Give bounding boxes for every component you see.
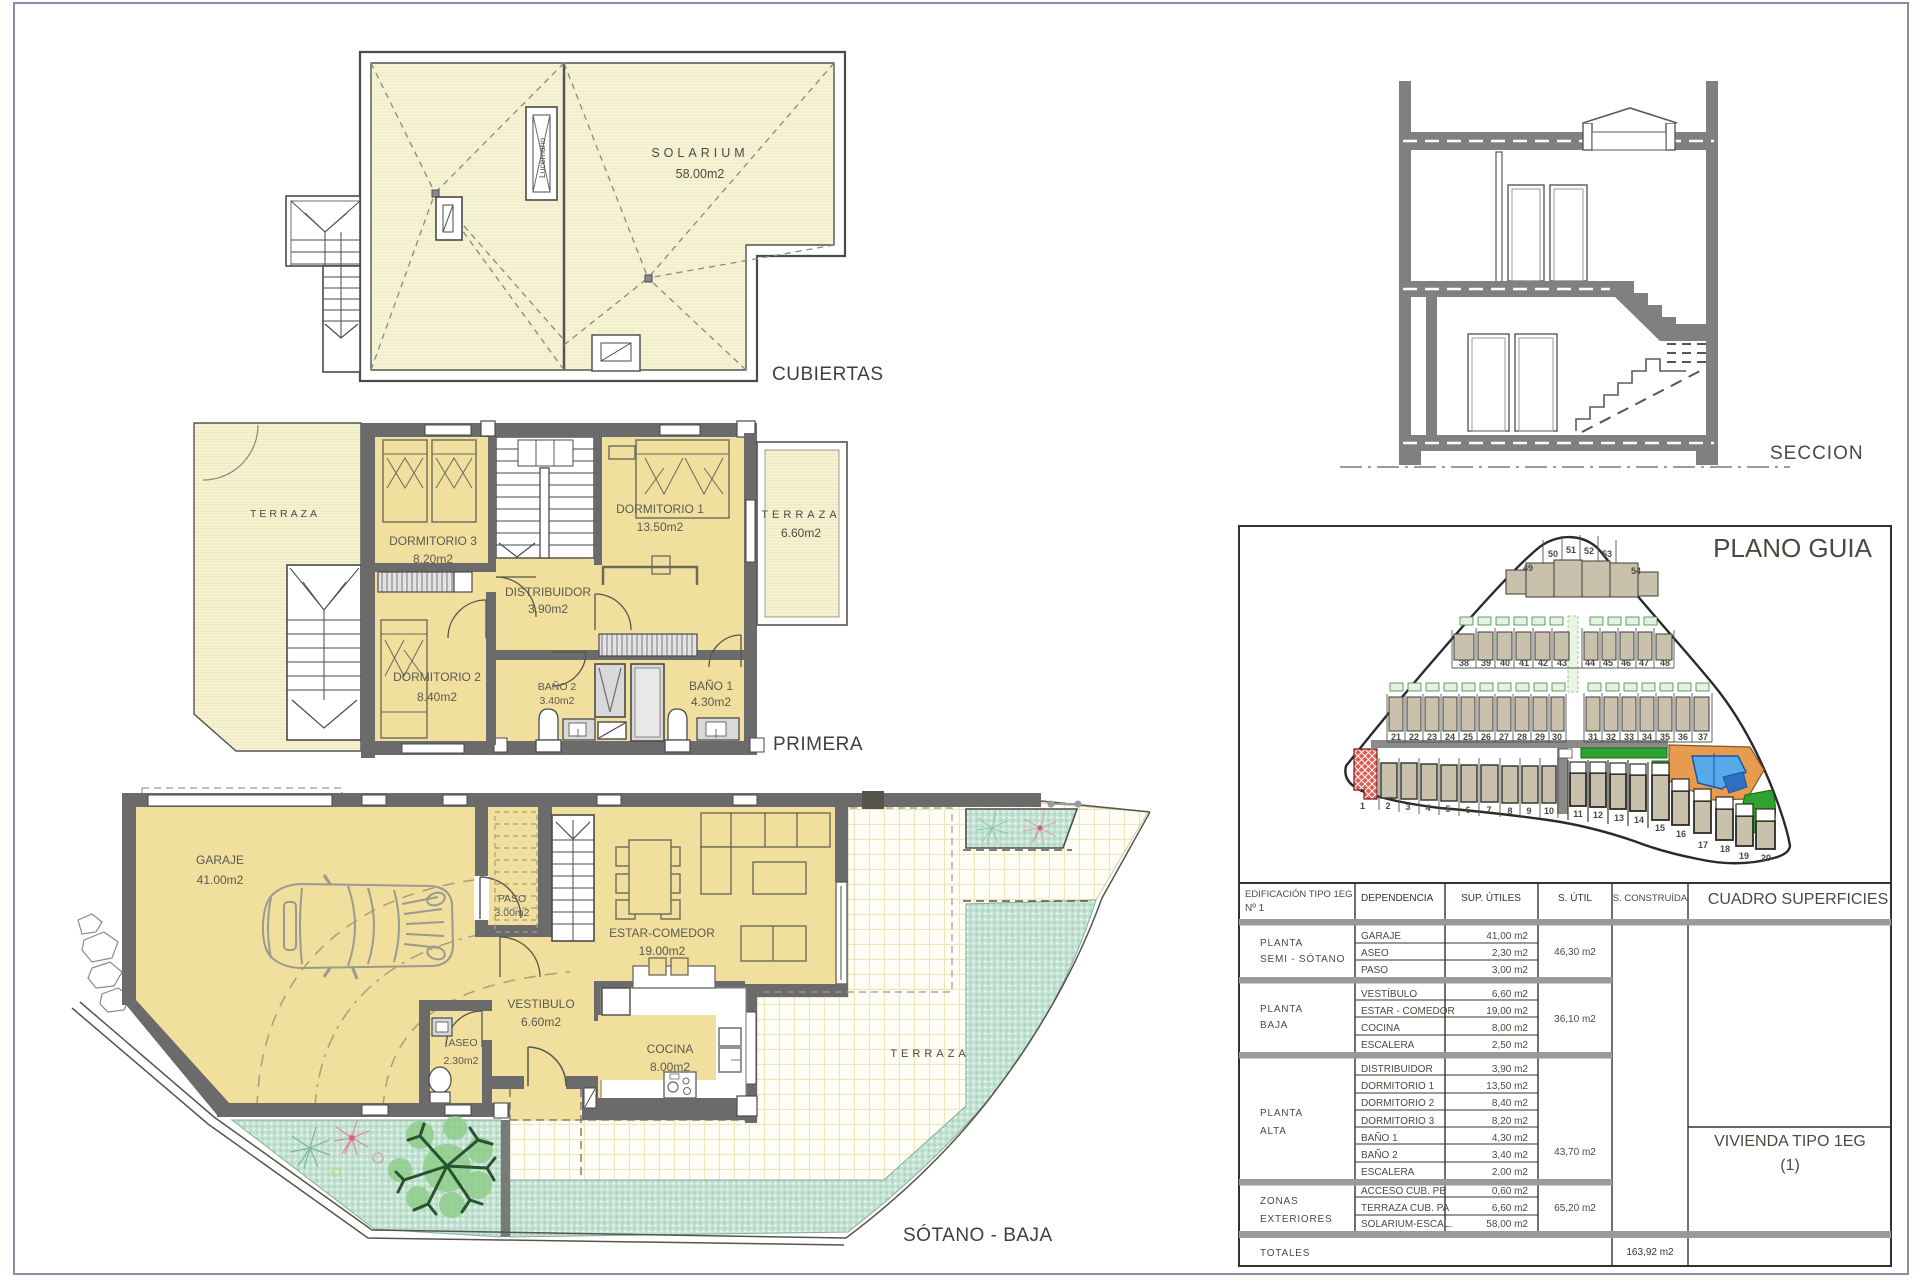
svg-text:49: 49 bbox=[1523, 563, 1533, 573]
svg-text:SEMI - SÓTANO: SEMI - SÓTANO bbox=[1260, 952, 1345, 965]
svg-text:11: 11 bbox=[1573, 809, 1583, 819]
svg-text:36,10 m2: 36,10 m2 bbox=[1554, 1014, 1596, 1025]
svg-text:40: 40 bbox=[1500, 658, 1510, 668]
svg-text:PLANTA: PLANTA bbox=[1260, 1004, 1303, 1015]
svg-text:SUP. ÚTILES: SUP. ÚTILES bbox=[1461, 891, 1521, 904]
svg-text:VESTIBULO: VESTIBULO bbox=[507, 997, 574, 1011]
svg-text:TERRAZA: TERRAZA bbox=[890, 1048, 969, 1060]
svg-text:35: 35 bbox=[1660, 732, 1670, 742]
svg-text:43: 43 bbox=[1557, 658, 1567, 668]
svg-text:Lucernario: Lucernario bbox=[537, 138, 547, 178]
svg-text:BAÑO 2: BAÑO 2 bbox=[538, 680, 577, 693]
svg-text:PRIMERA: PRIMERA bbox=[773, 734, 863, 755]
svg-text:50: 50 bbox=[1548, 549, 1558, 559]
svg-text:23: 23 bbox=[1427, 732, 1437, 742]
svg-text:41,00 m2: 41,00 m2 bbox=[1486, 931, 1528, 942]
svg-text:26: 26 bbox=[1481, 732, 1491, 742]
svg-text:41: 41 bbox=[1519, 658, 1529, 668]
svg-text:9: 9 bbox=[1526, 806, 1531, 816]
svg-text:GARAJE: GARAJE bbox=[1361, 931, 1401, 942]
svg-text:58,00 m2: 58,00 m2 bbox=[1486, 1219, 1528, 1230]
svg-text:ALTA: ALTA bbox=[1260, 1126, 1287, 1137]
svg-text:PASO: PASO bbox=[1361, 965, 1388, 976]
svg-text:8,40 m2: 8,40 m2 bbox=[1492, 1098, 1529, 1109]
svg-text:163,92 m2: 163,92 m2 bbox=[1626, 1247, 1674, 1258]
svg-text:34: 34 bbox=[1642, 732, 1652, 742]
svg-text:51: 51 bbox=[1566, 545, 1576, 555]
svg-text:48: 48 bbox=[1660, 658, 1670, 668]
svg-text:8.40m2: 8.40m2 bbox=[417, 690, 457, 704]
svg-text:EXTERIORES: EXTERIORES bbox=[1260, 1214, 1332, 1225]
svg-text:36: 36 bbox=[1678, 732, 1688, 742]
svg-text:8.00m2: 8.00m2 bbox=[650, 1060, 690, 1074]
svg-text:19.00m2: 19.00m2 bbox=[639, 944, 686, 958]
svg-text:17: 17 bbox=[1698, 840, 1708, 850]
svg-text:19: 19 bbox=[1739, 851, 1749, 861]
svg-text:VESTÍBULO: VESTÍBULO bbox=[1361, 987, 1417, 1000]
svg-text:8,00 m2: 8,00 m2 bbox=[1492, 1023, 1529, 1034]
svg-text:DORMITORIO 3: DORMITORIO 3 bbox=[389, 534, 477, 548]
svg-text:S. CONSTRUÍDA: S. CONSTRUÍDA bbox=[1613, 893, 1688, 904]
svg-text:52: 52 bbox=[1584, 546, 1594, 556]
svg-text:46: 46 bbox=[1621, 658, 1631, 668]
svg-text:2.30m2: 2.30m2 bbox=[443, 1055, 478, 1067]
svg-text:8.20m2: 8.20m2 bbox=[413, 552, 453, 566]
svg-text:ASEO: ASEO bbox=[448, 1037, 477, 1049]
svg-text:13.50m2: 13.50m2 bbox=[637, 520, 684, 534]
svg-text:BAÑO 2: BAÑO 2 bbox=[1361, 1148, 1398, 1161]
svg-text:27: 27 bbox=[1499, 732, 1509, 742]
svg-text:54: 54 bbox=[1631, 566, 1641, 576]
svg-text:15: 15 bbox=[1655, 823, 1665, 833]
svg-text:EDIFICACIÓN TIPO 1EG: EDIFICACIÓN TIPO 1EG bbox=[1245, 889, 1353, 900]
svg-text:6,60 m2: 6,60 m2 bbox=[1492, 989, 1529, 1000]
svg-text:PASO: PASO bbox=[498, 893, 526, 905]
svg-text:PLANTA: PLANTA bbox=[1260, 1108, 1303, 1119]
svg-text:DORMITORIO 1: DORMITORIO 1 bbox=[616, 502, 704, 516]
svg-text:ESTAR - COMEDOR: ESTAR - COMEDOR bbox=[1361, 1006, 1455, 1017]
svg-text:10: 10 bbox=[1544, 806, 1554, 816]
svg-text:58.00m2: 58.00m2 bbox=[676, 167, 725, 181]
svg-text:39: 39 bbox=[1481, 658, 1491, 668]
svg-text:6: 6 bbox=[1465, 805, 1470, 815]
svg-text:41.00m2: 41.00m2 bbox=[197, 873, 244, 887]
svg-text:13: 13 bbox=[1614, 813, 1624, 823]
svg-text:3.00m2: 3.00m2 bbox=[494, 907, 529, 919]
svg-text:ACCESO CUB. PB: ACCESO CUB. PB bbox=[1361, 1186, 1446, 1197]
svg-text:7: 7 bbox=[1486, 805, 1491, 815]
svg-text:3,40 m2: 3,40 m2 bbox=[1492, 1150, 1529, 1161]
svg-text:3,90 m2: 3,90 m2 bbox=[1492, 1064, 1529, 1075]
svg-text:TERRAZA: TERRAZA bbox=[250, 508, 320, 520]
svg-text:46,30 m2: 46,30 m2 bbox=[1554, 947, 1596, 958]
svg-text:CUBIERTAS: CUBIERTAS bbox=[772, 364, 884, 385]
svg-text:2: 2 bbox=[1385, 801, 1390, 811]
svg-text:TERRAZA CUB. PA: TERRAZA CUB. PA bbox=[1361, 1203, 1449, 1214]
svg-text:33: 33 bbox=[1624, 732, 1634, 742]
svg-text:13,50 m2: 13,50 m2 bbox=[1486, 1081, 1528, 1092]
svg-text:28: 28 bbox=[1517, 732, 1527, 742]
svg-text:14: 14 bbox=[1634, 815, 1644, 825]
svg-text:BAÑO 1: BAÑO 1 bbox=[689, 679, 733, 693]
svg-text:6.60m2: 6.60m2 bbox=[521, 1015, 561, 1029]
svg-text:DORMITORIO 2: DORMITORIO 2 bbox=[393, 670, 481, 684]
svg-text:43,70 m2: 43,70 m2 bbox=[1554, 1147, 1596, 1158]
svg-text:3,00 m2: 3,00 m2 bbox=[1492, 965, 1529, 976]
svg-text:25: 25 bbox=[1463, 732, 1473, 742]
svg-text:32: 32 bbox=[1606, 732, 1616, 742]
svg-text:GARAJE: GARAJE bbox=[196, 853, 244, 867]
svg-text:6.60m2: 6.60m2 bbox=[781, 526, 821, 540]
svg-text:4: 4 bbox=[1425, 803, 1430, 813]
svg-text:SOLARIUM-ESCAL.: SOLARIUM-ESCAL. bbox=[1361, 1219, 1452, 1230]
svg-text:TOTALES: TOTALES bbox=[1260, 1248, 1310, 1259]
svg-text:24: 24 bbox=[1445, 732, 1455, 742]
svg-text:ASEO: ASEO bbox=[1361, 948, 1389, 959]
svg-text:53: 53 bbox=[1602, 549, 1612, 559]
svg-text:BAJA: BAJA bbox=[1260, 1020, 1288, 1031]
svg-text:DISTRIBUIDOR: DISTRIBUIDOR bbox=[1361, 1064, 1433, 1075]
svg-text:ESCALERA: ESCALERA bbox=[1361, 1167, 1415, 1178]
svg-text:45: 45 bbox=[1603, 658, 1613, 668]
svg-text:ESTAR-COMEDOR: ESTAR-COMEDOR bbox=[609, 926, 715, 940]
svg-text:DORMITORIO 1: DORMITORIO 1 bbox=[1361, 1081, 1435, 1092]
svg-text:3: 3 bbox=[1405, 802, 1410, 812]
svg-text:22: 22 bbox=[1409, 732, 1419, 742]
svg-text:ESCALERA: ESCALERA bbox=[1361, 1040, 1415, 1051]
svg-text:DISTRIBUIDOR: DISTRIBUIDOR bbox=[505, 585, 591, 599]
svg-text:PLANTA: PLANTA bbox=[1260, 938, 1303, 949]
svg-text:0,60 m2: 0,60 m2 bbox=[1492, 1186, 1529, 1197]
svg-text:65,20 m2: 65,20 m2 bbox=[1554, 1203, 1596, 1214]
svg-text:DEPENDENCIA: DEPENDENCIA bbox=[1361, 893, 1434, 904]
svg-text:3.40m2: 3.40m2 bbox=[539, 695, 574, 707]
svg-text:21: 21 bbox=[1391, 732, 1401, 742]
svg-text:31: 31 bbox=[1588, 732, 1598, 742]
svg-text:CUADRO SUPERFICIES: CUADRO SUPERFICIES bbox=[1708, 891, 1888, 908]
svg-text:DORMITORIO 3: DORMITORIO 3 bbox=[1361, 1116, 1435, 1127]
svg-text:SECCION: SECCION bbox=[1770, 443, 1864, 464]
svg-text:COCINA: COCINA bbox=[1361, 1023, 1400, 1034]
svg-text:20: 20 bbox=[1761, 853, 1771, 863]
svg-text:1: 1 bbox=[1360, 801, 1365, 811]
svg-text:4.30m2: 4.30m2 bbox=[691, 695, 731, 709]
svg-text:COCINA: COCINA bbox=[647, 1042, 694, 1056]
svg-text:SÓTANO - BAJA: SÓTANO - BAJA bbox=[903, 1224, 1053, 1246]
svg-text:16: 16 bbox=[1676, 829, 1686, 839]
svg-text:38: 38 bbox=[1459, 658, 1469, 668]
svg-text:SOLARIUM: SOLARIUM bbox=[651, 146, 748, 160]
svg-text:6,60 m2: 6,60 m2 bbox=[1492, 1203, 1529, 1214]
svg-text:5: 5 bbox=[1445, 804, 1450, 814]
svg-text:2,00 m2: 2,00 m2 bbox=[1492, 1167, 1529, 1178]
svg-text:12: 12 bbox=[1593, 810, 1603, 820]
svg-text:37: 37 bbox=[1698, 732, 1708, 742]
svg-text:2,50 m2: 2,50 m2 bbox=[1492, 1040, 1529, 1051]
svg-text:PLANO GUIA: PLANO GUIA bbox=[1713, 533, 1873, 563]
svg-text:47: 47 bbox=[1639, 658, 1649, 668]
svg-text:30: 30 bbox=[1552, 732, 1562, 742]
svg-text:BAÑO 1: BAÑO 1 bbox=[1361, 1131, 1398, 1144]
svg-text:(1): (1) bbox=[1780, 1157, 1800, 1174]
svg-text:DORMITORIO 2: DORMITORIO 2 bbox=[1361, 1098, 1435, 1109]
svg-text:S. ÚTIL: S. ÚTIL bbox=[1558, 891, 1592, 904]
svg-text:ZONAS: ZONAS bbox=[1260, 1196, 1298, 1207]
svg-text:8,20 m2: 8,20 m2 bbox=[1492, 1116, 1529, 1127]
svg-text:TERRAZA: TERRAZA bbox=[761, 509, 840, 521]
svg-text:29: 29 bbox=[1535, 732, 1545, 742]
svg-text:42: 42 bbox=[1538, 658, 1548, 668]
svg-text:8: 8 bbox=[1507, 806, 1512, 816]
svg-text:44: 44 bbox=[1585, 658, 1595, 668]
svg-text:18: 18 bbox=[1720, 844, 1730, 854]
svg-text:2,30 m2: 2,30 m2 bbox=[1492, 948, 1529, 959]
svg-text:VIVIENDA TIPO 1EG: VIVIENDA TIPO 1EG bbox=[1714, 1133, 1866, 1150]
svg-text:4,30 m2: 4,30 m2 bbox=[1492, 1133, 1529, 1144]
svg-text:Nº 1: Nº 1 bbox=[1245, 903, 1265, 914]
svg-text:3.90m2: 3.90m2 bbox=[528, 602, 568, 616]
svg-text:19,00 m2: 19,00 m2 bbox=[1486, 1006, 1528, 1017]
